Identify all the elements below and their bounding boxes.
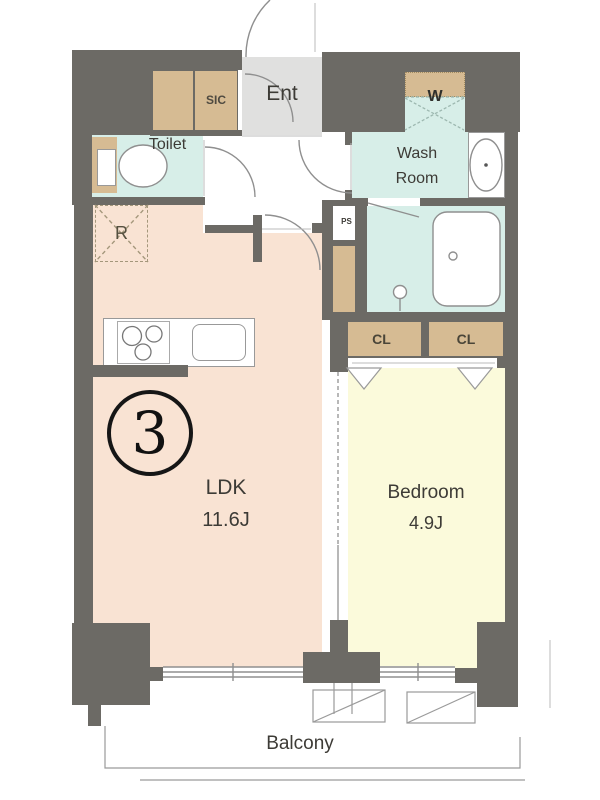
ldk-size: 11.6J: [176, 509, 276, 532]
wall: [322, 52, 405, 132]
toilet-tank: [97, 149, 116, 186]
closet-left-label: CL: [340, 331, 423, 347]
wall: [253, 215, 262, 262]
washroom-label-line1: Wash: [377, 141, 457, 166]
stove: [117, 321, 170, 364]
wall: [405, 52, 465, 72]
entrance-label: Ent: [252, 82, 312, 106]
pipe-space-label: PS: [333, 217, 360, 226]
shoe-closet-label: SIC: [194, 94, 238, 108]
wall: [74, 197, 93, 623]
floor-plan: Ent SIC Toilet W Wash Room PS R LDK 11.6…: [0, 0, 600, 800]
washroom-label: Wash Room: [377, 141, 457, 191]
toilet-label: Toilet: [130, 136, 205, 154]
ldk-name: LDK: [176, 476, 276, 500]
wall: [72, 623, 150, 705]
washer-label: W: [405, 88, 465, 106]
shoe-closet-left: [152, 70, 194, 132]
wall: [72, 50, 242, 70]
wall: [352, 198, 368, 206]
bathroom-floor: [367, 206, 505, 312]
bedroom-size: 4.9J: [366, 513, 486, 534]
washroom-label-line2: Room: [377, 166, 457, 191]
wall: [322, 312, 518, 320]
wall: [497, 358, 505, 368]
wall: [330, 620, 348, 652]
balcony-outline: [105, 683, 525, 780]
unit-number-badge: 3: [107, 390, 193, 476]
bedroom-label: Bedroom 4.9J: [366, 482, 486, 534]
ldk-floor: [150, 623, 322, 667]
wall: [505, 132, 518, 622]
wall: [345, 190, 352, 200]
vanity-sink-cabinet: [468, 132, 505, 198]
refrigerator-label: R: [95, 223, 148, 244]
wall: [345, 132, 352, 145]
wall: [72, 197, 205, 205]
closet-hanger-strip: [348, 358, 497, 368]
wall: [477, 622, 518, 707]
wall: [72, 70, 152, 135]
wall: [150, 667, 163, 681]
ac-unit-left: [313, 690, 385, 722]
ldk-label: LDK 11.6J: [176, 476, 276, 532]
ac-unit-right: [407, 692, 475, 723]
closet-right-label: CL: [427, 331, 505, 347]
bedroom-name: Bedroom: [366, 482, 486, 504]
wall: [303, 652, 380, 683]
wall: [322, 200, 333, 320]
bedroom-floor: [380, 652, 455, 666]
wall: [93, 365, 188, 377]
wall: [465, 52, 520, 132]
unit-number: 3: [132, 399, 169, 467]
wall: [88, 705, 101, 726]
wall: [205, 225, 253, 233]
wall: [420, 198, 505, 206]
bedroom-floor: [348, 622, 455, 652]
wall: [455, 668, 487, 683]
balcony-label: Balcony: [250, 733, 350, 755]
bedroom-floor: [455, 622, 477, 668]
kitchen-cabinet-column: [333, 246, 355, 312]
kitchen-sink: [192, 324, 246, 361]
wall: [72, 135, 92, 197]
